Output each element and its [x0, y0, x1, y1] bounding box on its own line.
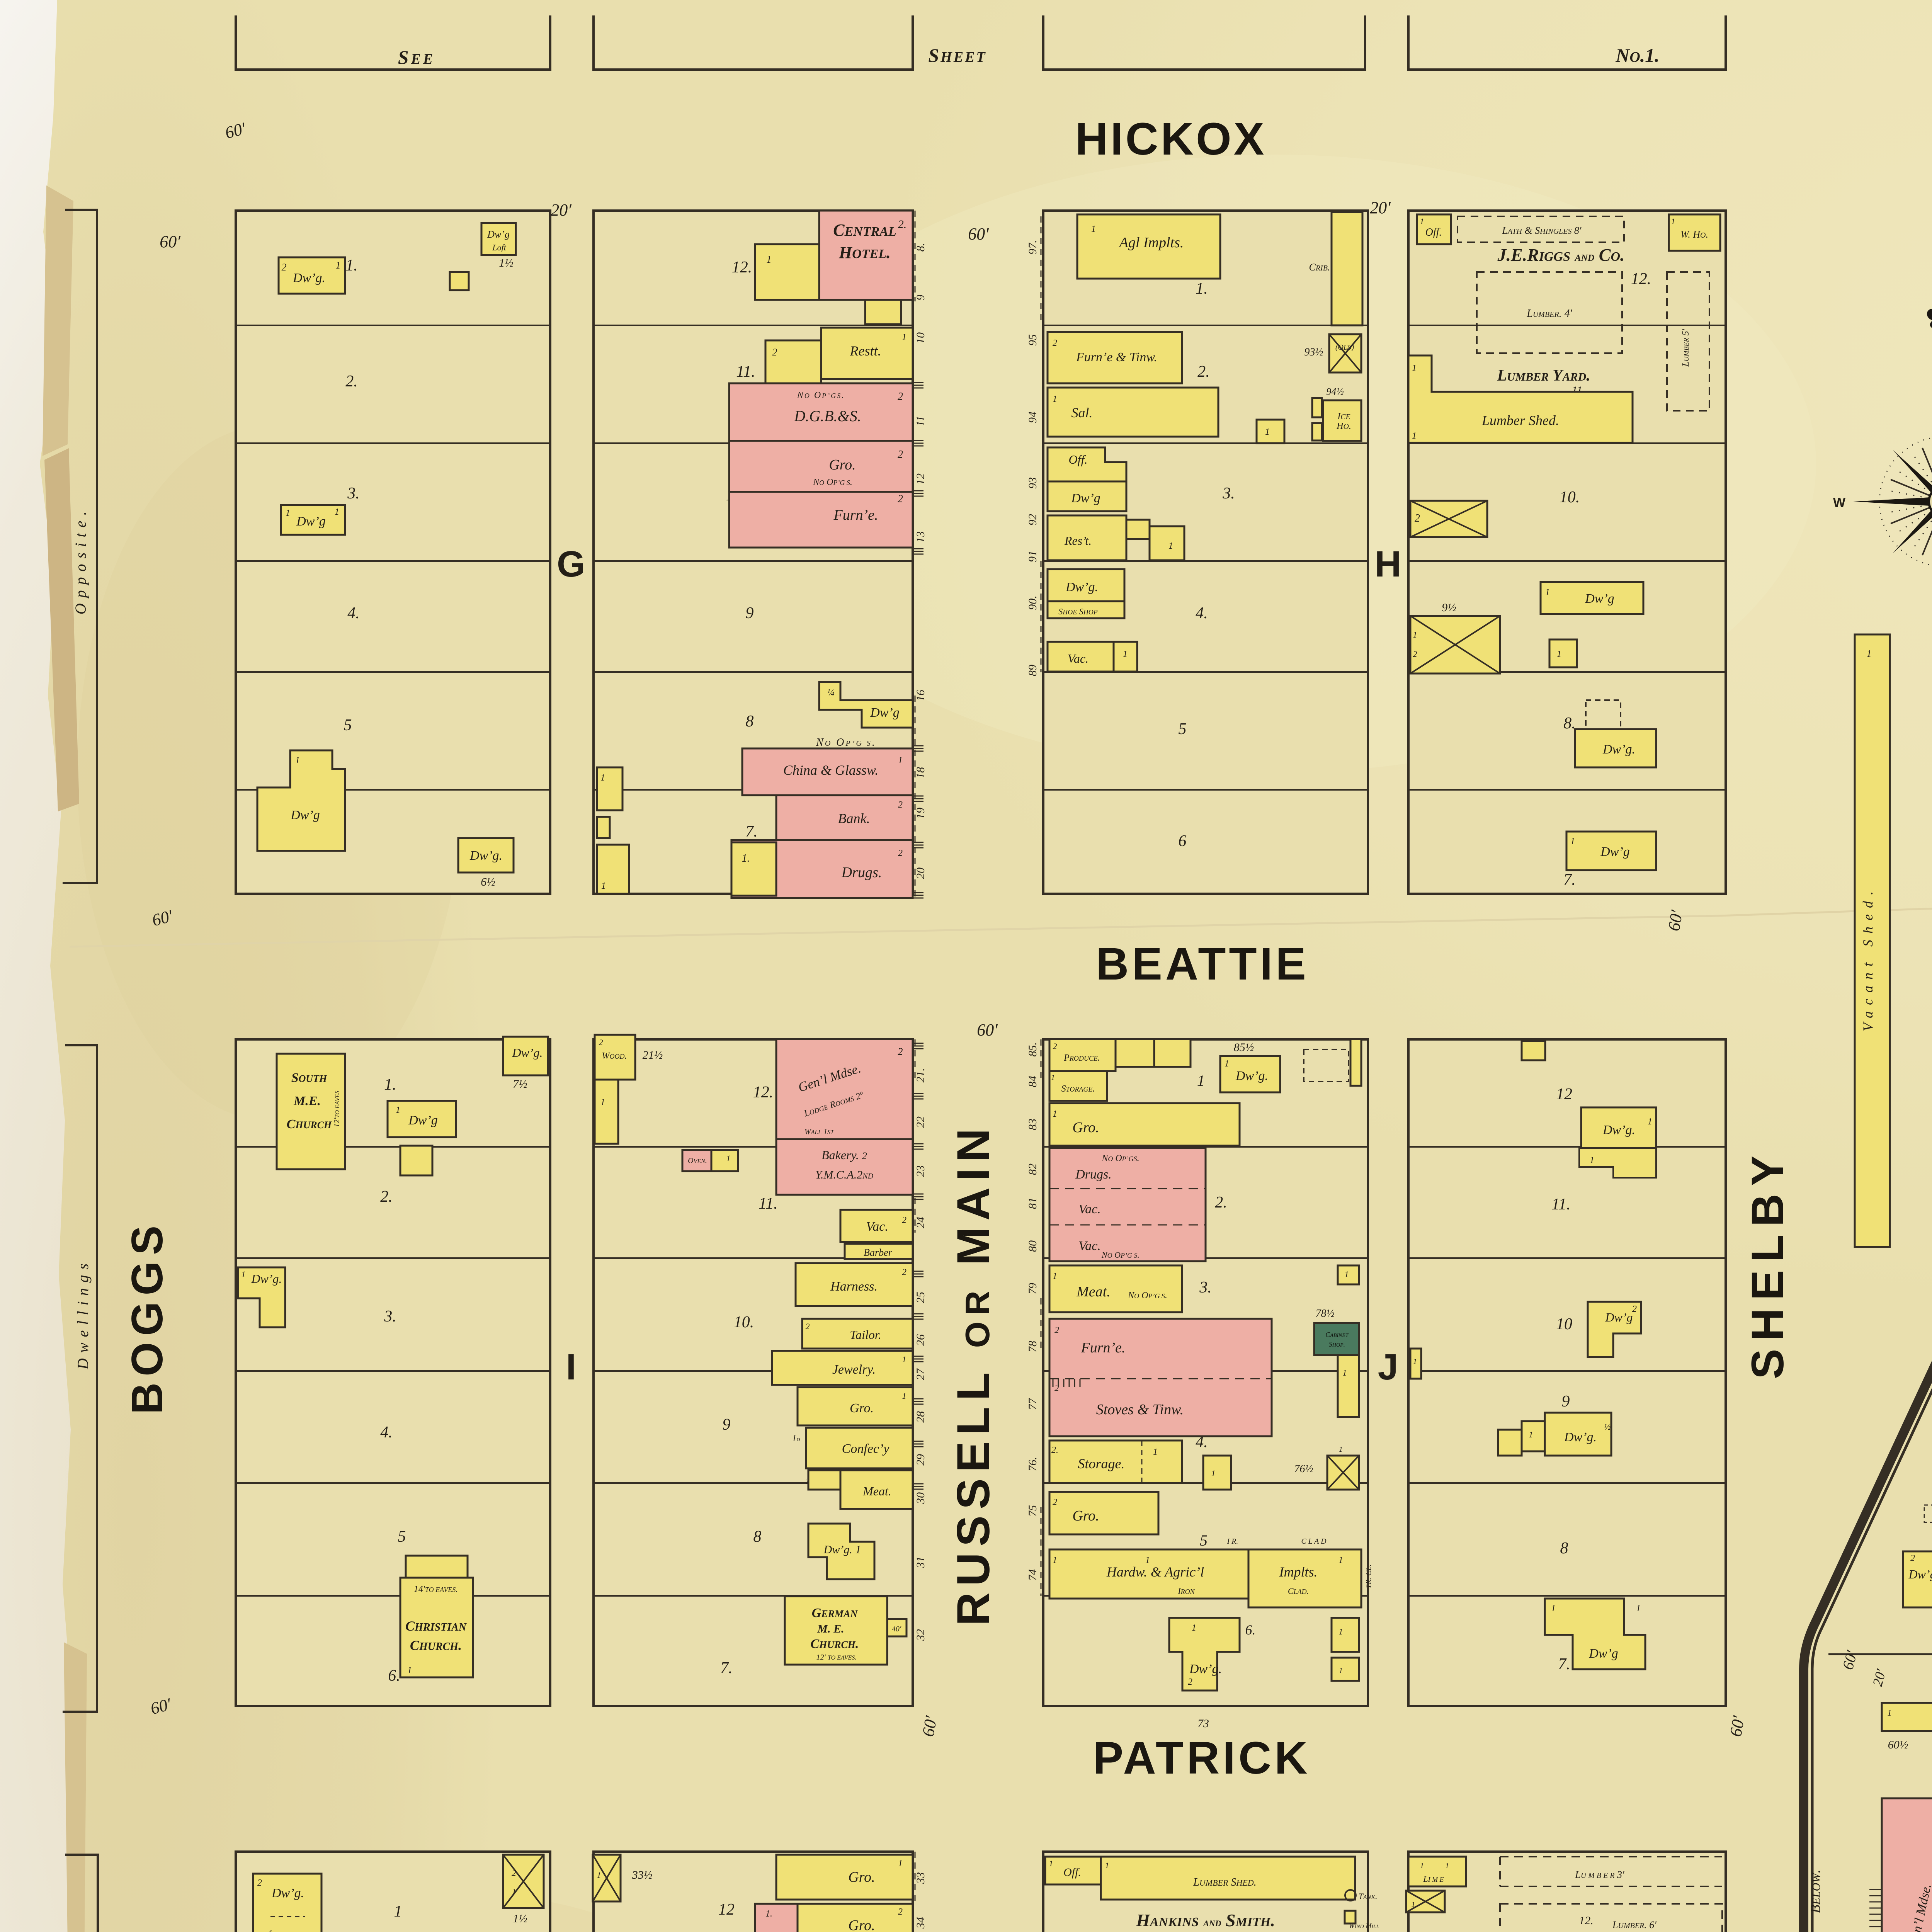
svg-text:10.: 10. — [1560, 488, 1580, 506]
svg-text:Dw’g.: Dw’g. — [469, 849, 502, 863]
svg-text:ICE: ICE — [1337, 412, 1350, 422]
svg-text:1: 1 — [1053, 394, 1057, 404]
svg-text:1.: 1. — [1412, 1900, 1417, 1909]
svg-text:1: 1 — [898, 1859, 903, 1869]
svg-text:1: 1 — [1413, 1357, 1417, 1366]
svg-text:Off.: Off. — [1069, 452, 1088, 466]
svg-text:1: 1 — [601, 881, 606, 891]
svg-text:82: 82 — [1026, 1163, 1039, 1175]
svg-text:7.: 7. — [720, 1659, 733, 1677]
svg-text:Confec’y: Confec’y — [842, 1442, 890, 1456]
svg-text:M.E.: M.E. — [293, 1094, 321, 1108]
svg-text:2: 2 — [898, 1907, 903, 1917]
svg-text:94½: 94½ — [1326, 386, 1344, 397]
svg-text:23: 23 — [914, 1165, 927, 1177]
svg-text:5: 5 — [1179, 720, 1187, 738]
svg-text:G: G — [557, 544, 585, 585]
svg-text:HICKOX: HICKOX — [1075, 114, 1267, 165]
svg-text:SHOE SHOP: SHOE SHOP — [1058, 607, 1098, 616]
svg-text:78: 78 — [1026, 1341, 1039, 1352]
svg-text:8.: 8. — [1563, 714, 1576, 732]
svg-text:1: 1 — [1413, 630, 1417, 639]
svg-text:20′: 20′ — [1370, 198, 1391, 217]
svg-text:LUMBER 5′: LUMBER 5′ — [1681, 328, 1691, 367]
svg-text:Vac.: Vac. — [866, 1219, 888, 1234]
svg-text:Tailor.: Tailor. — [850, 1328, 881, 1342]
svg-text:HO.: HO. — [1336, 421, 1351, 431]
svg-text:60′: 60′ — [968, 224, 989, 243]
svg-text:3.: 3. — [1222, 485, 1235, 502]
svg-text:1: 1 — [1049, 1859, 1053, 1868]
svg-text:2: 2 — [898, 391, 903, 403]
svg-text:7.: 7. — [745, 823, 758, 840]
svg-text:2: 2 — [902, 1215, 906, 1225]
svg-text:1: 1 — [1339, 1445, 1343, 1454]
svg-text:Dw’g.: Dw’g. — [271, 1886, 304, 1900]
svg-text:2: 2 — [898, 1046, 903, 1057]
svg-text:SOUTH: SOUTH — [291, 1071, 327, 1085]
svg-text:NO OP’G S.: NO OP’G S. — [1101, 1250, 1139, 1260]
svg-text:25: 25 — [914, 1292, 927, 1303]
svg-text:95: 95 — [1026, 334, 1039, 346]
svg-text:5: 5 — [1200, 1532, 1207, 1549]
svg-text:11.: 11. — [1551, 1196, 1570, 1213]
svg-text:Dw’g.: Dw’g. — [1065, 580, 1098, 594]
svg-text:WOOD.: WOOD. — [602, 1051, 627, 1061]
svg-text:Furn’e.: Furn’e. — [1080, 1340, 1125, 1356]
svg-text:Dw’g.: Dw’g. — [251, 1272, 282, 1286]
svg-text:1: 1 — [394, 1903, 402, 1920]
svg-text:1: 1 — [1345, 1269, 1349, 1279]
svg-text:Drugs.: Drugs. — [841, 864, 882, 881]
svg-text:2.: 2. — [898, 218, 907, 231]
svg-text:RUSSELL OR MAIN: RUSSELL OR MAIN — [947, 1122, 999, 1626]
svg-text:8: 8 — [753, 1528, 762, 1546]
svg-text:1o: 1o — [792, 1434, 800, 1444]
svg-text:1: 1 — [396, 1105, 400, 1115]
svg-text:Restt.: Restt. — [850, 343, 881, 359]
svg-text:6½: 6½ — [481, 876, 495, 888]
svg-text:5: 5 — [398, 1528, 406, 1546]
svg-text:TR. CL.: TR. CL. — [1364, 1565, 1373, 1589]
svg-text:Dw’g.: Dw’g. — [1235, 1069, 1268, 1083]
svg-text:12′ TO EAVES.: 12′ TO EAVES. — [816, 1653, 857, 1662]
svg-text:2.: 2. — [345, 372, 358, 390]
svg-text:1: 1 — [1051, 1073, 1055, 1082]
svg-text:2: 2 — [898, 449, 903, 461]
svg-text:1: 1 — [1636, 1604, 1641, 1614]
svg-text:83: 83 — [1026, 1119, 1039, 1130]
svg-text:1.: 1. — [765, 1909, 772, 1919]
svg-text:6: 6 — [1179, 832, 1187, 850]
svg-text:M. E.: M. E. — [817, 1622, 844, 1635]
svg-text:1: 1 — [512, 1888, 516, 1898]
svg-text:1: 1 — [767, 254, 772, 265]
svg-text:1: 1 — [1145, 1555, 1150, 1565]
svg-text:18: 18 — [914, 767, 927, 779]
svg-text:21½: 21½ — [643, 1049, 663, 1061]
svg-text:Meat.: Meat. — [1076, 1284, 1111, 1300]
svg-text:20: 20 — [914, 867, 927, 879]
svg-text:2: 2 — [1053, 1041, 1057, 1051]
svg-text:93: 93 — [1026, 477, 1039, 489]
svg-text:10: 10 — [914, 332, 927, 344]
svg-text:12.: 12. — [1579, 1914, 1594, 1927]
svg-text:Dw’g: Dw’g — [1605, 1310, 1633, 1324]
svg-text:8: 8 — [746, 713, 754, 730]
svg-text:I R.: I R. — [1227, 1537, 1238, 1546]
svg-text:3.: 3. — [1199, 1279, 1212, 1296]
svg-text:2: 2 — [1188, 1677, 1192, 1687]
svg-text:1: 1 — [898, 755, 903, 765]
svg-text:NO OP’GS.: NO OP’GS. — [797, 390, 845, 400]
svg-text:76½: 76½ — [1294, 1463, 1313, 1475]
svg-text:1: 1 — [902, 1391, 906, 1401]
svg-text:12: 12 — [914, 473, 927, 485]
svg-text:1: 1 — [269, 1928, 273, 1932]
svg-text:NO OP’G S.: NO OP’G S. — [813, 477, 852, 487]
svg-text:2: 2 — [257, 1878, 262, 1888]
svg-text:1: 1 — [1168, 541, 1173, 551]
svg-text:PRODUCE.: PRODUCE. — [1063, 1053, 1100, 1063]
svg-text:Gro.: Gro. — [848, 1869, 875, 1885]
svg-text:1: 1 — [597, 1870, 601, 1880]
svg-text:2: 2 — [806, 1321, 810, 1331]
svg-text:Gro.: Gro. — [848, 1917, 875, 1932]
svg-text:2: 2 — [1053, 1497, 1057, 1507]
svg-text:1: 1 — [1412, 363, 1417, 373]
svg-text:Off.: Off. — [1063, 1866, 1081, 1879]
svg-text:Dw’g: Dw’g — [1600, 845, 1630, 859]
svg-text:Dw’g: Dw’g — [1908, 1567, 1932, 1581]
svg-text:5: 5 — [344, 716, 352, 734]
svg-text:Storage.: Storage. — [1078, 1456, 1125, 1471]
svg-text:1.: 1. — [384, 1076, 396, 1094]
svg-text:1: 1 — [1339, 1627, 1343, 1636]
svg-text:1: 1 — [241, 1269, 246, 1279]
svg-text:12: 12 — [718, 1901, 735, 1918]
svg-text:2: 2 — [1632, 1304, 1637, 1314]
svg-text:Vac.: Vac. — [1078, 1239, 1101, 1253]
svg-text:4.: 4. — [380, 1423, 393, 1441]
svg-text:Dw’g.: Dw’g. — [512, 1046, 543, 1060]
svg-text:79: 79 — [1026, 1283, 1039, 1294]
svg-text:Dw’g. 1: Dw’g. 1 — [823, 1543, 861, 1556]
svg-text:Stoves & Tinw.: Stoves & Tinw. — [1096, 1401, 1184, 1418]
svg-text:97.: 97. — [1026, 240, 1039, 255]
svg-text:2: 2 — [282, 262, 287, 273]
svg-text:CLAD.: CLAD. — [1288, 1586, 1309, 1596]
svg-text:2: 2 — [898, 800, 903, 810]
svg-text:1: 1 — [1545, 587, 1550, 597]
svg-text:12.: 12. — [753, 1083, 774, 1101]
svg-text:12.: 12. — [732, 259, 752, 276]
svg-text:60½: 60½ — [1888, 1738, 1908, 1751]
svg-text:LI M E: LI M E — [1423, 1874, 1444, 1884]
svg-text:Furn’e & Tinw.: Furn’e & Tinw. — [1076, 350, 1157, 364]
svg-text:84: 84 — [1026, 1076, 1039, 1087]
svg-text:30: 30 — [914, 1492, 927, 1504]
svg-text:94: 94 — [1026, 412, 1039, 423]
svg-text:1: 1 — [1888, 1708, 1892, 1718]
svg-text:Dw’g: Dw’g — [408, 1113, 438, 1128]
svg-text:2.: 2. — [1051, 1445, 1058, 1455]
svg-text:13: 13 — [914, 531, 927, 543]
svg-text:GERMAN: GERMAN — [812, 1606, 858, 1620]
svg-text:WALL 1ST: WALL 1ST — [804, 1128, 834, 1136]
svg-text:Dw’g.: Dw’g. — [1602, 1123, 1635, 1137]
svg-text:Dw’g: Dw’g — [1071, 491, 1100, 505]
svg-text:90.: 90. — [1026, 595, 1039, 610]
svg-text:1: 1 — [295, 755, 300, 765]
svg-text:NO OP’GS.: NO OP’GS. — [1101, 1153, 1139, 1163]
svg-text:20′: 20′ — [551, 201, 572, 219]
svg-text:Furn’e.: Furn’e. — [833, 507, 878, 523]
svg-text:Bank.: Bank. — [838, 811, 870, 826]
svg-text:1: 1 — [1192, 1623, 1196, 1633]
svg-text:9½: 9½ — [1442, 601, 1456, 614]
svg-text:1: 1 — [726, 1153, 731, 1163]
svg-text:9: 9 — [914, 295, 927, 301]
svg-text:Dw’g.: Dw’g. — [1189, 1662, 1222, 1676]
svg-text:LUMBER SHED.: LUMBER SHED. — [1193, 1876, 1256, 1888]
svg-text:8.: 8. — [914, 243, 927, 252]
svg-text:Gro.: Gro. — [1072, 1119, 1099, 1136]
svg-text:2: 2 — [599, 1037, 603, 1047]
svg-text:1: 1 — [1338, 1555, 1343, 1565]
svg-text:(OLD): (OLD) — [1335, 343, 1354, 352]
svg-text:1: 1 — [1053, 1109, 1057, 1119]
svg-text:74: 74 — [1026, 1569, 1039, 1581]
svg-text:11: 11 — [914, 416, 927, 427]
svg-text:75: 75 — [1026, 1505, 1039, 1517]
svg-text:1: 1 — [600, 1097, 605, 1107]
svg-text:Vac.: Vac. — [1078, 1202, 1101, 1216]
svg-text:1: 1 — [1420, 1862, 1424, 1870]
svg-text:China & Glassw.: China & Glassw. — [783, 762, 878, 778]
svg-text:80: 80 — [1026, 1240, 1039, 1252]
svg-text:Res’t.: Res’t. — [1064, 534, 1092, 548]
svg-text:1: 1 — [1053, 1555, 1057, 1565]
svg-text:¼: ¼ — [827, 688, 834, 698]
svg-text:1.: 1. — [742, 852, 750, 864]
svg-text:1: 1 — [335, 507, 339, 517]
svg-text:1: 1 — [1412, 431, 1417, 441]
svg-text:D.G.B.&S.: D.G.B.&S. — [794, 407, 861, 425]
svg-text:2: 2 — [898, 493, 903, 505]
svg-text:60′: 60′ — [160, 232, 181, 251]
svg-text:4.: 4. — [347, 604, 360, 622]
svg-text:27: 27 — [914, 1368, 927, 1380]
svg-text:1: 1 — [1225, 1059, 1229, 1069]
svg-text:1: 1 — [1557, 649, 1561, 659]
svg-text:11.: 11. — [759, 1195, 777, 1213]
svg-text:73: 73 — [1197, 1717, 1209, 1730]
svg-text:9: 9 — [723, 1416, 731, 1434]
svg-text:1: 1 — [1105, 1861, 1109, 1870]
svg-text:2.: 2. — [1215, 1194, 1227, 1211]
svg-text:Dw’g: Dw’g — [290, 808, 320, 822]
svg-text:19: 19 — [914, 808, 927, 819]
svg-text:Dw’g.: Dw’g. — [1564, 1430, 1597, 1444]
svg-text:Dw’g.: Dw’g. — [293, 271, 325, 285]
svg-text:Dw’g: Dw’g — [296, 514, 326, 529]
svg-text:2.: 2. — [1197, 363, 1210, 381]
svg-text:22: 22 — [914, 1116, 927, 1128]
svg-text:Vac.: Vac. — [1068, 651, 1088, 665]
svg-text:1: 1 — [1867, 648, 1872, 659]
svg-text:1: 1 — [1529, 1430, 1533, 1439]
svg-text:60′: 60′ — [1726, 1714, 1748, 1738]
svg-text:2: 2 — [1053, 338, 1057, 348]
svg-text:93½: 93½ — [1304, 346, 1323, 358]
svg-text:1½: 1½ — [513, 1912, 527, 1925]
svg-text:Gro.: Gro. — [829, 457, 855, 473]
svg-text:1: 1 — [1153, 1447, 1158, 1457]
svg-text:1: 1 — [1123, 649, 1128, 659]
svg-text:1: 1 — [1671, 216, 1675, 226]
svg-text:85.: 85. — [1026, 1042, 1039, 1057]
svg-text:10.: 10. — [734, 1313, 754, 1331]
svg-text:12: 12 — [1556, 1085, 1572, 1103]
svg-text:Agl Implts.: Agl Implts. — [1118, 235, 1184, 251]
svg-text:Meat.: Meat. — [862, 1484, 891, 1498]
svg-text:CHURCH.: CHURCH. — [810, 1637, 859, 1651]
svg-text:2: 2 — [772, 347, 777, 358]
svg-text:1: 1 — [1339, 1667, 1343, 1675]
svg-text:2: 2 — [902, 1267, 906, 1277]
svg-text:32: 32 — [914, 1629, 927, 1641]
svg-text:1: 1 — [1343, 1368, 1347, 1378]
svg-text:1: 1 — [1570, 837, 1575, 847]
svg-text:6.: 6. — [388, 1667, 400, 1685]
svg-text:11.: 11. — [736, 363, 755, 381]
svg-text:Drugs.: Drugs. — [1075, 1167, 1112, 1182]
svg-text:PATRICK: PATRICK — [1093, 1733, 1311, 1784]
svg-text:3.: 3. — [347, 485, 360, 502]
svg-text:C L A D: C L A D — [1301, 1537, 1327, 1546]
svg-text:60′: 60′ — [918, 1714, 941, 1738]
svg-text:Dw’g.: Dw’g. — [1602, 742, 1635, 757]
svg-text:1: 1 — [1211, 1468, 1216, 1478]
svg-text:21.: 21. — [914, 1068, 927, 1083]
svg-text:Gro.: Gro. — [850, 1401, 874, 1415]
svg-text:1: 1 — [1197, 1072, 1205, 1089]
svg-text:16: 16 — [914, 690, 927, 701]
svg-text:28: 28 — [914, 1411, 927, 1423]
svg-text:Opposite.: Opposite. — [72, 506, 89, 614]
svg-text:2: 2 — [898, 848, 903, 858]
svg-text:6.: 6. — [1245, 1622, 1256, 1638]
svg-text:BEATTIE: BEATTIE — [1096, 939, 1309, 990]
svg-text:29: 29 — [914, 1454, 927, 1466]
svg-text:Hardw. & Agric’l: Hardw. & Agric’l — [1106, 1564, 1204, 1580]
svg-text:60′: 60′ — [977, 1020, 998, 1039]
svg-text:BELOW.: BELOW. — [1808, 1870, 1823, 1913]
svg-text:33½: 33½ — [632, 1869, 653, 1881]
svg-text:92: 92 — [1026, 514, 1039, 526]
svg-text:Sal.: Sal. — [1071, 405, 1092, 420]
svg-text:Dw’g: Dw’g — [870, 706, 900, 720]
svg-text:77: 77 — [1026, 1398, 1039, 1410]
svg-text:CHURCH: CHURCH — [287, 1117, 332, 1131]
svg-text:STORAGE.: STORAGE. — [1061, 1084, 1095, 1094]
svg-text:40′: 40′ — [892, 1625, 901, 1633]
svg-text:H: H — [1375, 544, 1401, 585]
svg-text:1: 1 — [902, 332, 906, 342]
svg-text:1: 1 — [1053, 1271, 1057, 1281]
svg-text:7.: 7. — [1563, 871, 1576, 889]
svg-text:14′TO EAVES.: 14′TO EAVES. — [414, 1584, 458, 1594]
svg-text:9: 9 — [1562, 1393, 1570, 1410]
svg-text:2: 2 — [1910, 1553, 1915, 1563]
svg-text:1.: 1. — [1196, 280, 1208, 298]
svg-text:BOGGS: BOGGS — [123, 1219, 172, 1414]
svg-text:91: 91 — [1026, 551, 1039, 562]
svg-text:8: 8 — [1560, 1539, 1568, 1557]
svg-text:W: W — [1833, 495, 1846, 510]
svg-text:10: 10 — [1556, 1315, 1572, 1333]
svg-text:Loft: Loft — [492, 243, 506, 252]
svg-text:1: 1 — [1551, 1604, 1556, 1614]
svg-text:1: 1 — [1420, 216, 1424, 226]
svg-text:Vacant Shed.: Vacant Shed. — [1860, 885, 1876, 1031]
svg-text:OVEN.: OVEN. — [688, 1156, 707, 1165]
svg-text:Dwellings: Dwellings — [74, 1258, 92, 1370]
svg-text:9: 9 — [746, 604, 754, 622]
svg-text:½: ½ — [1604, 1422, 1611, 1432]
svg-text:33: 33 — [914, 1872, 927, 1884]
svg-text:1: 1 — [407, 1665, 412, 1675]
svg-text:NO OP’G S.: NO OP’G S. — [1128, 1291, 1167, 1301]
svg-text:I: I — [566, 1347, 576, 1388]
svg-text:89: 89 — [1026, 665, 1039, 676]
svg-text:1: 1 — [286, 508, 290, 518]
svg-text:SHELBY: SHELBY — [1742, 1148, 1793, 1379]
svg-text:2: 2 — [1054, 1325, 1059, 1335]
svg-text:Bakery. 2: Bakery. 2 — [821, 1148, 867, 1162]
svg-text:1: 1 — [1091, 224, 1096, 234]
svg-text:60′: 60′ — [1664, 908, 1687, 932]
svg-text:78½: 78½ — [1316, 1308, 1335, 1320]
svg-text:12.: 12. — [1631, 270, 1651, 288]
svg-text:4.: 4. — [1196, 604, 1208, 622]
svg-text:3.: 3. — [384, 1308, 396, 1325]
svg-text:Dw’g: Dw’g — [487, 229, 510, 240]
svg-text:Jewelry.: Jewelry. — [832, 1362, 876, 1377]
svg-text:Dw’g: Dw’g — [1585, 592, 1614, 606]
svg-text:1: 1 — [336, 260, 341, 271]
svg-text:1: 1 — [1648, 1117, 1652, 1127]
svg-text:2: 2 — [1415, 512, 1420, 524]
svg-text:1½: 1½ — [499, 257, 514, 269]
svg-text:Gro.: Gro. — [1072, 1508, 1099, 1524]
svg-text:34: 34 — [914, 1917, 927, 1929]
svg-text:81: 81 — [1026, 1197, 1039, 1209]
svg-text:2: 2 — [1413, 649, 1417, 659]
svg-text:2: 2 — [512, 1868, 516, 1878]
svg-text:85½: 85½ — [1234, 1041, 1254, 1054]
svg-text:Lumber Shed.: Lumber Shed. — [1481, 413, 1559, 428]
svg-text:7½: 7½ — [513, 1078, 527, 1090]
svg-text:1: 1 — [1265, 427, 1270, 437]
svg-text:1: 1 — [902, 1354, 906, 1364]
svg-text:J: J — [1378, 1347, 1398, 1388]
svg-text:Harness.: Harness. — [830, 1279, 878, 1294]
svg-text:31: 31 — [914, 1556, 927, 1568]
svg-text:Dw’g: Dw’g — [1588, 1646, 1618, 1661]
svg-text:1.: 1. — [345, 257, 358, 274]
